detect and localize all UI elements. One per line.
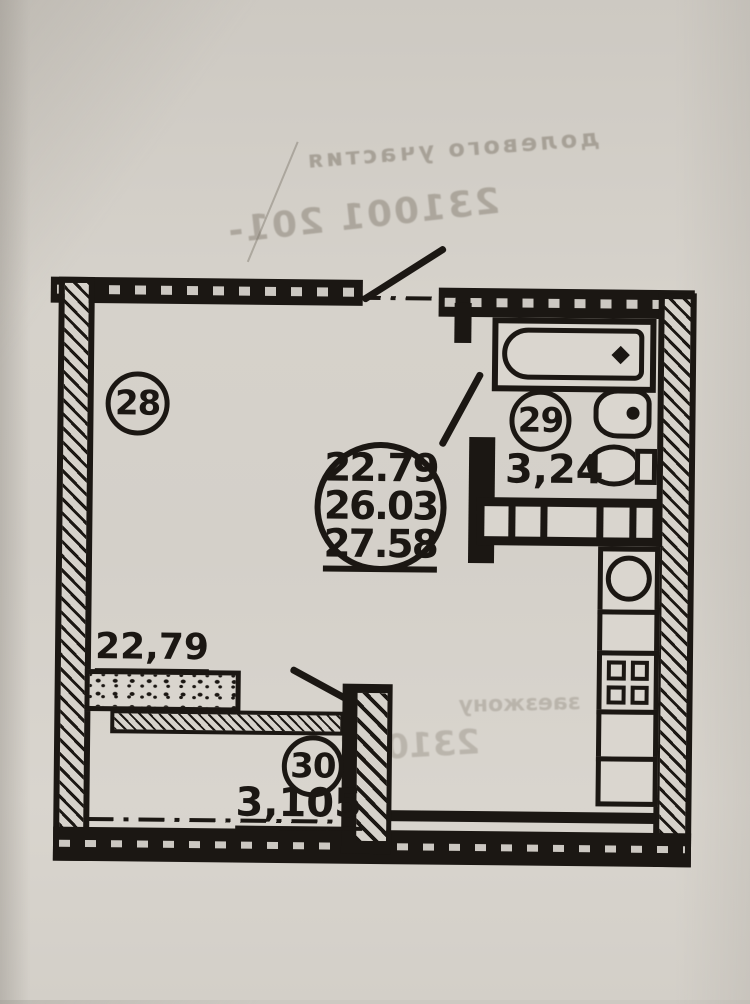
wall-top-left [51, 277, 363, 306]
loggia-door-swing [289, 666, 350, 704]
wall-hatch [445, 297, 689, 309]
total-area-value: 27.58 [323, 526, 437, 572]
toilet-tank [635, 449, 657, 485]
floor-plan: долевого участия 231001 201- 231005 заез… [0, 0, 750, 1004]
wall-hatch [57, 285, 357, 297]
duct-cell [484, 506, 509, 536]
wall-left [53, 277, 95, 861]
loggia-sill-band [110, 709, 344, 735]
stove-burner [607, 660, 626, 680]
kitchen-counter [595, 546, 660, 817]
loggia-parapet-wall [84, 669, 240, 713]
duct-cell [516, 506, 541, 536]
duct-cell [547, 507, 596, 538]
stove-burner [630, 685, 649, 705]
ghost-text-top: долевого участия [304, 123, 601, 174]
entry-door-swing [361, 245, 447, 303]
counter-cell [596, 709, 659, 762]
counter-cell [597, 609, 659, 656]
ghost-text-mid-word: заезжону [458, 690, 580, 718]
room-29-number: 29 [509, 389, 572, 452]
duct-cell [637, 508, 653, 538]
vent-duct-block [476, 497, 660, 547]
stove-icon [596, 650, 659, 715]
bathtub-icon [492, 317, 657, 393]
room-28-area: 22,79 [95, 629, 209, 673]
room-29-area: 3,24 [505, 449, 604, 490]
counter-cell [595, 756, 658, 807]
stove-burner [607, 685, 626, 705]
stove-burner [630, 661, 649, 681]
washbasin-tap [626, 407, 639, 420]
room-28-number: 28 [105, 371, 170, 436]
wall-top-right [439, 288, 695, 320]
duct-cell [603, 507, 630, 537]
room-30-area: 3,105 [235, 783, 362, 831]
area-stamp-values: 22.79 26.03 27.58 [302, 449, 459, 572]
bathroom-wall-stub [454, 303, 471, 343]
kitchen-sink-cell [597, 546, 660, 615]
room-number-text: 28 [115, 383, 161, 423]
room-number-text: 29 [518, 400, 564, 440]
kitchen-sink-icon [606, 555, 652, 601]
washbasin-icon [593, 388, 652, 439]
